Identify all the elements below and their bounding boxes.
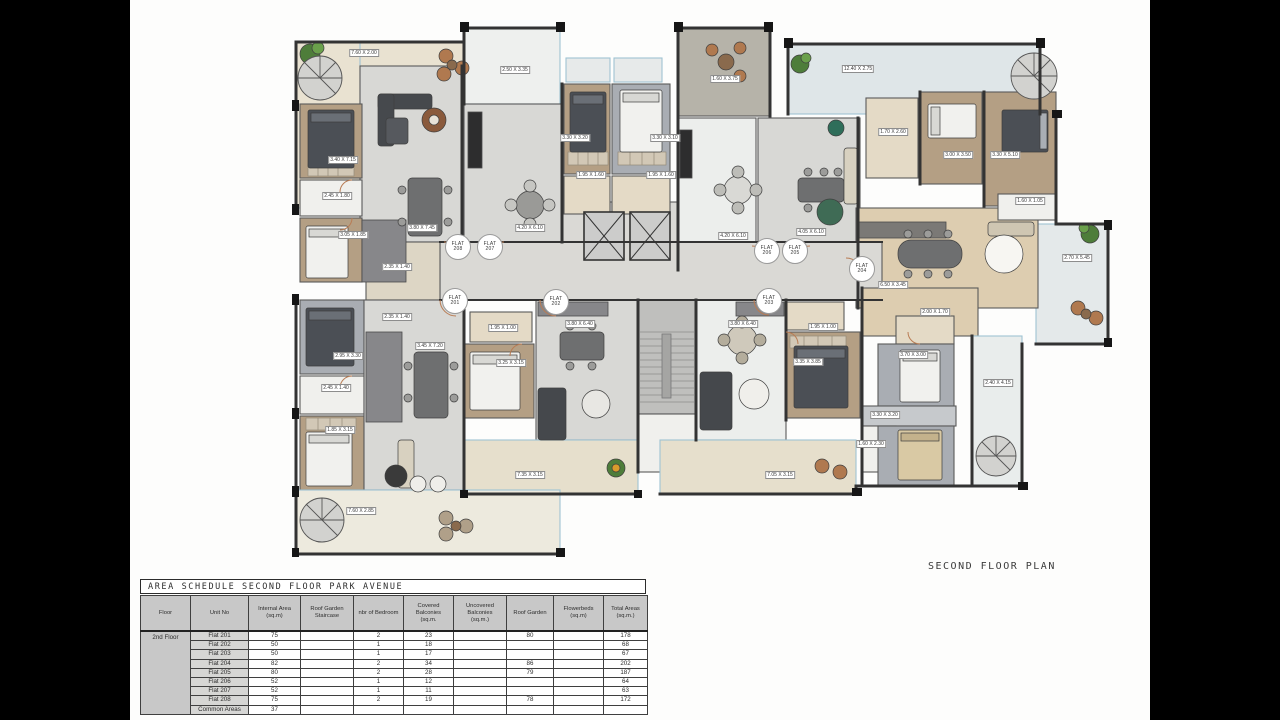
schedule-column-header: Uncovered Balconies (sq.m.) — [454, 596, 507, 632]
unit-cell: Common Areas — [191, 705, 249, 714]
schedule-cell — [554, 677, 604, 686]
schedule-row: Flat 2048223486202 — [141, 659, 648, 668]
schedule-cell — [507, 650, 554, 659]
schedule-cell: 78 — [507, 696, 554, 705]
schedule-cell — [301, 696, 354, 705]
schedule-cell — [301, 650, 354, 659]
plant — [828, 120, 844, 136]
unit-cell: Flat 208 — [191, 696, 249, 705]
schedule-cell — [301, 631, 354, 641]
schedule-cell — [404, 705, 454, 714]
bed — [570, 92, 606, 152]
schedule-cell: 18 — [404, 641, 454, 650]
schedule-cell — [454, 687, 507, 696]
schedule-cell — [301, 659, 354, 668]
schedule-column-header: Roof Garden Staircase — [301, 596, 354, 632]
schedule-cell — [454, 631, 507, 641]
schedule-cell: 1 — [354, 677, 404, 686]
schedule-cell: 80 — [249, 668, 301, 677]
schedule-cell — [301, 668, 354, 677]
spiral-stair — [300, 498, 344, 542]
unit-cell: Flat 201 — [191, 631, 249, 641]
schedule-cell: 34 — [404, 659, 454, 668]
schedule-body: 2nd FloorFlat 2017522380178Flat 20250118… — [141, 631, 648, 714]
schedule-cell — [507, 641, 554, 650]
bed — [306, 226, 348, 278]
schedule-cell: 19 — [404, 696, 454, 705]
schedule-cell: 2 — [354, 659, 404, 668]
schedule-cell — [554, 641, 604, 650]
schedule-cell — [454, 705, 507, 714]
schedule-cell: 86 — [507, 659, 554, 668]
bed — [1002, 110, 1048, 152]
schedule-cell: 50 — [249, 641, 301, 650]
area-schedule-table: FloorUnit NoInternal Area (sq.m)Roof Gar… — [140, 595, 648, 715]
schedule-cell: 1 — [354, 641, 404, 650]
schedule-row: Flat 2087521978172 — [141, 696, 648, 705]
bed — [794, 346, 848, 408]
spiral-stair — [1011, 53, 1057, 99]
unit-cell: Flat 206 — [191, 677, 249, 686]
schedule-cell — [554, 650, 604, 659]
schedule-cell: 17 — [404, 650, 454, 659]
schedule-cell — [507, 687, 554, 696]
schedule-column-header: Total Areas (sq.m.) — [604, 596, 648, 632]
schedule-column-header: Unit No — [191, 596, 249, 632]
schedule-cell: 2 — [354, 696, 404, 705]
schedule-cell — [301, 641, 354, 650]
schedule-cell — [507, 705, 554, 714]
schedule-cell — [454, 677, 507, 686]
plan-title: SECOND FLOOR PLAN — [928, 561, 1056, 572]
schedule-cell: 52 — [249, 687, 301, 696]
schedule-cell: 63 — [604, 687, 648, 696]
schedule-cell — [301, 687, 354, 696]
schedule-cell: 80 — [507, 631, 554, 641]
schedule-cell: 79 — [507, 668, 554, 677]
schedule-cell: 50 — [249, 650, 301, 659]
schedule-column-header: Floor — [141, 596, 191, 632]
schedule-cell — [454, 650, 507, 659]
schedule-row: Flat 2025011868 — [141, 641, 648, 650]
schedule-cell: 82 — [249, 659, 301, 668]
elevator-shaft — [630, 212, 670, 260]
schedule-cell: 37 — [249, 705, 301, 714]
schedule-cell — [354, 705, 404, 714]
schedule-cell: 1 — [354, 650, 404, 659]
bed — [898, 430, 942, 480]
schedule-row: Flat 2058022879187 — [141, 668, 648, 677]
schedule-cell: 12 — [404, 677, 454, 686]
schedule-cell: 1 — [354, 687, 404, 696]
schedule-cell — [604, 705, 648, 714]
schedule-column-header: Covered Balconies (sq.m. — [404, 596, 454, 632]
schedule-cell: 23 — [404, 631, 454, 641]
schedule-cell — [554, 687, 604, 696]
schedule-cell: 52 — [249, 677, 301, 686]
schedule-row: 2nd FloorFlat 2017522380178 — [141, 631, 648, 641]
schedule-cell: 68 — [604, 641, 648, 650]
page: 7.60 X 2.002.50 X 3.351.60 X 3.7512.40 X… — [0, 0, 1280, 720]
unit-cell: Flat 207 — [191, 687, 249, 696]
spiral-stair — [298, 56, 342, 100]
schedule-row: Flat 2075211163 — [141, 687, 648, 696]
schedule-column-header: Internal Area (sq.m) — [249, 596, 301, 632]
schedule-cell — [454, 696, 507, 705]
schedule-cell: 28 — [404, 668, 454, 677]
schedule-cell — [554, 668, 604, 677]
unit-cell: Flat 203 — [191, 650, 249, 659]
schedule-cell — [454, 659, 507, 668]
schedule-column-header: Flowerbeds (sq.m) — [554, 596, 604, 632]
schedule-row: Flat 2065211264 — [141, 677, 648, 686]
bed — [308, 110, 354, 168]
schedule-cell: 187 — [604, 668, 648, 677]
schedule-row: Flat 2035011767 — [141, 650, 648, 659]
schedule-row: Common Areas37 — [141, 705, 648, 714]
schedule-cell — [507, 677, 554, 686]
schedule-cell: 2 — [354, 668, 404, 677]
schedule-cell: 11 — [404, 687, 454, 696]
schedule-cell: 75 — [249, 631, 301, 641]
schedule-title: AREA SCHEDULE SECOND FLOOR PARK AVENUE — [140, 579, 646, 594]
unit-cell: Flat 202 — [191, 641, 249, 650]
unit-cell: Flat 205 — [191, 668, 249, 677]
bed — [620, 90, 662, 152]
schedule-cell — [554, 659, 604, 668]
plant — [607, 459, 625, 477]
schedule-cell: 202 — [604, 659, 648, 668]
bed — [470, 352, 520, 410]
spiral-stair — [976, 436, 1016, 476]
schedule-cell — [554, 631, 604, 641]
schedule-cell — [454, 668, 507, 677]
schedule-column-header: nbr of Bedroom — [354, 596, 404, 632]
schedule-cell — [554, 705, 604, 714]
floor-cell: 2nd Floor — [141, 631, 191, 714]
bed — [900, 350, 940, 402]
schedule-cell: 67 — [604, 650, 648, 659]
schedule-cell: 172 — [604, 696, 648, 705]
schedule-column-header: Roof Garden — [507, 596, 554, 632]
schedule-cell — [301, 677, 354, 686]
schedule-cell: 2 — [354, 631, 404, 641]
bed — [306, 432, 352, 486]
schedule-cell: 178 — [604, 631, 648, 641]
bed — [306, 308, 354, 366]
unit-cell: Flat 204 — [191, 659, 249, 668]
schedule-cell — [301, 705, 354, 714]
schedule-cell — [454, 641, 507, 650]
bed — [928, 104, 976, 138]
schedule-header: FloorUnit NoInternal Area (sq.m)Roof Gar… — [141, 596, 648, 632]
schedule-cell — [554, 696, 604, 705]
elevator-shaft — [584, 212, 624, 260]
schedule-cell: 64 — [604, 677, 648, 686]
schedule-cell: 75 — [249, 696, 301, 705]
